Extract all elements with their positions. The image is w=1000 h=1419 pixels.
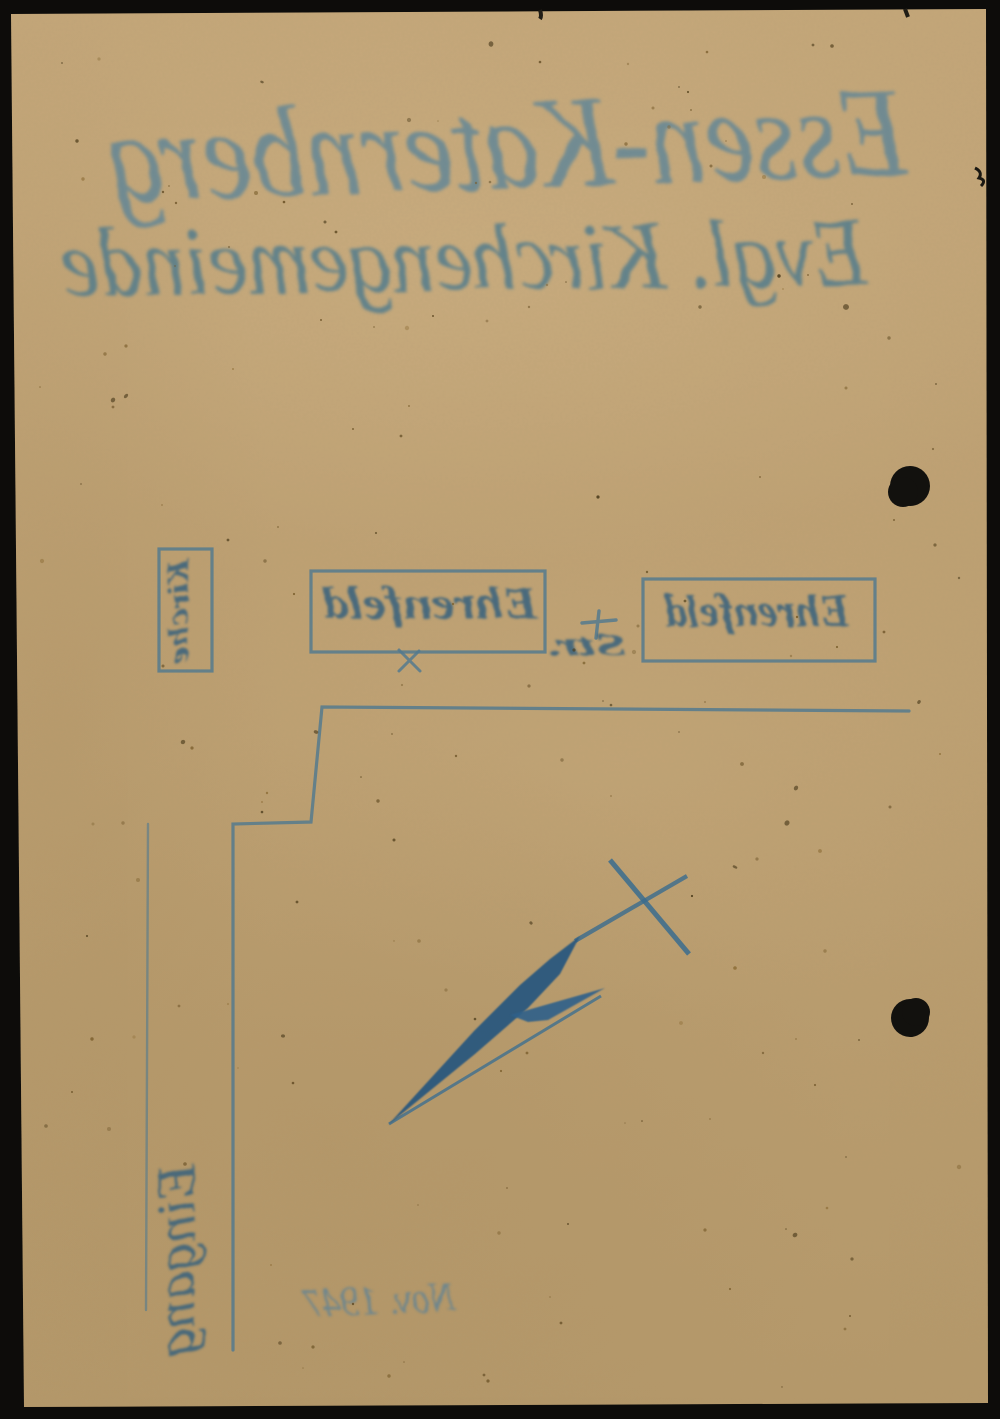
svg-text:Eingang: Eingang	[146, 1163, 206, 1357]
svg-text:Nov. 1947: Nov. 1947	[301, 1275, 458, 1328]
svg-text:Ehrenfeld: Ehrenfeld	[321, 577, 538, 628]
svg-text:Ehrenfeld: Ehrenfeld	[664, 585, 851, 636]
svg-text:Evgl. Kirchengemeinde: Evgl. Kirchengemeinde	[60, 198, 869, 316]
svg-text:Str.: Str.	[545, 627, 627, 664]
svg-text:Kirche: Kirche	[162, 557, 195, 664]
